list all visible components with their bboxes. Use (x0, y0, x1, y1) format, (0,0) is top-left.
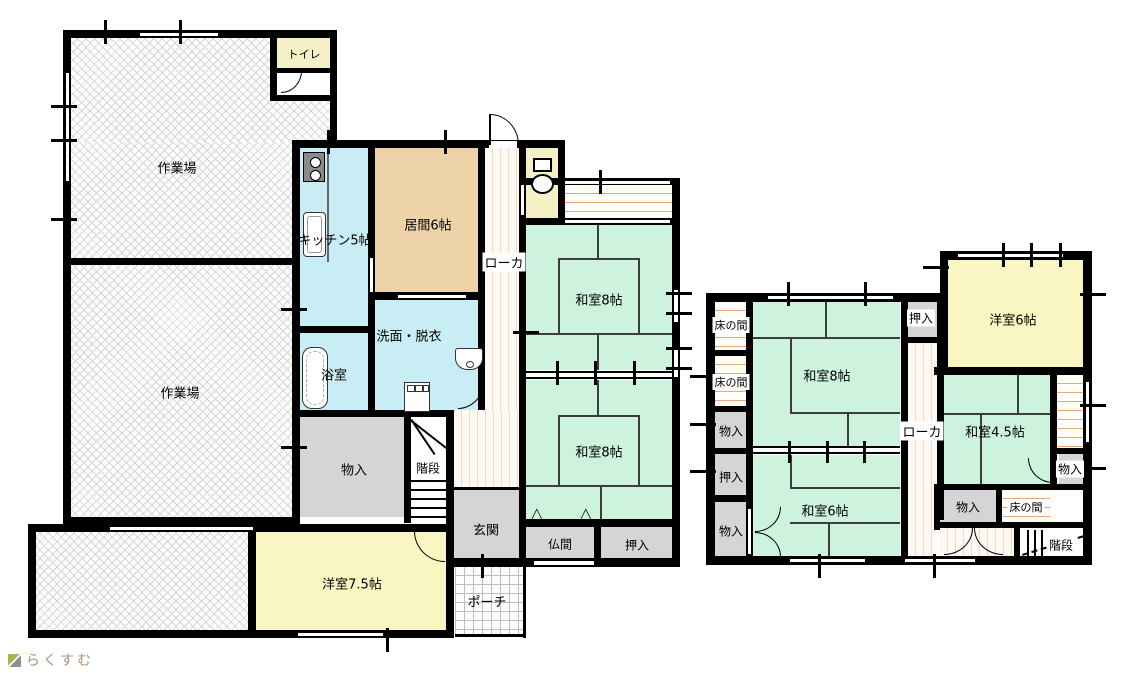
tatami-line (526, 485, 672, 487)
tick (923, 266, 949, 269)
porch-edge (523, 566, 526, 638)
label-kitchen: キッチン5帖 (298, 230, 371, 249)
corridor-right-bldg (908, 343, 937, 556)
label-tatami8-2: 和室8帖 (575, 442, 622, 461)
wall (28, 524, 36, 638)
tick (826, 441, 829, 463)
label-storage-left: 物入 (341, 460, 367, 479)
tick (481, 554, 484, 578)
tatami-line (1017, 375, 1019, 415)
tick (51, 218, 77, 221)
wall (594, 527, 601, 562)
label-oshiire-right: 押入 (719, 469, 743, 486)
tick (633, 361, 636, 385)
window (534, 561, 594, 565)
label-western6: 洋室6帖 (989, 310, 1036, 329)
label-tatami45: 和室4.5帖 (965, 422, 1025, 441)
tick (690, 423, 716, 426)
label-porch: ポーチ (467, 592, 506, 611)
label-tatami6-right: 和室6帖 (801, 501, 848, 520)
tatami-line (638, 415, 640, 487)
door-arc-main-entry (490, 114, 519, 145)
tick (1059, 243, 1062, 267)
stove-icon (303, 152, 325, 182)
floorplan-canvas: △ △ 作業場 作業場 トイレ キッチン5帖 居間6帖 ローカ 洗面・脱衣 浴室… (0, 0, 1135, 673)
wall (450, 487, 523, 490)
tatami-line (597, 225, 599, 260)
window (298, 633, 383, 636)
stair-step (411, 507, 446, 509)
corridor-left-lower (454, 410, 519, 487)
tick (818, 554, 821, 578)
tick (386, 628, 389, 652)
tick (327, 130, 330, 154)
rail (526, 371, 672, 373)
wall (712, 495, 748, 502)
tick (556, 361, 559, 385)
tatami-line (790, 412, 900, 414)
window (66, 73, 69, 181)
label-tokonoma2: 床の間 (713, 374, 750, 390)
wall (1053, 448, 1092, 454)
wall (292, 145, 300, 530)
tatami-line (825, 302, 827, 339)
tatami-line (828, 522, 830, 556)
wall (28, 630, 258, 638)
label-oshiire-top-right: 押入 (907, 310, 935, 327)
label-stairs-right: 階段 (1047, 537, 1075, 554)
label-storage2-right: 物入 (719, 523, 743, 540)
wall (706, 293, 715, 565)
label-workshop2: 作業場 (160, 383, 199, 402)
window (905, 559, 975, 562)
tatami-line (526, 333, 672, 335)
label-workshop1: 作業場 (157, 158, 196, 177)
wall (712, 350, 748, 356)
door-opening (748, 509, 751, 554)
label-corridor-left: ローカ (482, 253, 525, 272)
tatami-line (597, 333, 599, 370)
stair-step (411, 498, 446, 500)
wall (1014, 522, 1020, 562)
room-workshop-annex (36, 532, 248, 630)
window (1086, 382, 1089, 442)
tick (1080, 404, 1106, 407)
tick (788, 441, 791, 463)
wall (934, 484, 1056, 490)
tatami-line (600, 485, 602, 519)
tick (1002, 243, 1005, 267)
window (565, 220, 670, 223)
tick (666, 367, 692, 370)
corridor-left (485, 148, 519, 410)
door-opening (521, 185, 524, 215)
tick (933, 554, 936, 578)
tatami-line (942, 413, 1050, 415)
stair-step (411, 480, 446, 482)
tick (666, 292, 692, 295)
tick (690, 470, 716, 473)
tick (787, 282, 790, 306)
door-leaf (489, 114, 491, 145)
wall (292, 140, 485, 148)
label-storage-far-right: 物入 (1056, 461, 1084, 478)
tatami-line (847, 412, 849, 447)
tatami-line (558, 415, 560, 487)
tatami-line (790, 487, 900, 489)
tick (51, 105, 77, 108)
rail (526, 377, 672, 379)
tick (599, 170, 602, 194)
label-corridor-right: ローカ (900, 422, 943, 441)
tatami-line (597, 380, 599, 417)
window (565, 181, 670, 184)
washing-machine-icon (404, 382, 430, 412)
wall (901, 337, 941, 343)
sliding-door (370, 258, 373, 292)
logo-text: らくすむ (26, 650, 94, 670)
label-washroom: 洗面・脱衣 (376, 326, 441, 345)
label-tatami8-right: 和室8帖 (803, 366, 850, 385)
label-butsuma: 仏間 (548, 536, 572, 553)
wall (712, 448, 748, 454)
wall (270, 95, 337, 101)
window (674, 347, 678, 377)
tatami-line (790, 337, 792, 414)
stair-step (411, 489, 446, 491)
wall (292, 326, 375, 333)
label-toilet-top: トイレ (288, 46, 321, 62)
tick (281, 446, 307, 449)
label-tokonoma-bottom: 床の間 (1008, 499, 1045, 515)
window (398, 295, 466, 298)
label-living: 居間6帖 (404, 215, 451, 234)
label-entrance: 玄関 (473, 520, 499, 539)
tick (666, 312, 692, 315)
tick (104, 20, 107, 44)
tatami-line (638, 258, 640, 335)
label-stairs-left: 階段 (414, 460, 442, 477)
site-logo: らくすむ (8, 650, 94, 670)
tick (594, 361, 597, 385)
tick (864, 282, 867, 306)
logo-icon (8, 654, 21, 667)
porch-edge (455, 634, 526, 637)
wall (934, 367, 1092, 375)
tick (666, 347, 692, 350)
wall (330, 30, 337, 147)
wall (404, 417, 411, 523)
tick (51, 139, 77, 142)
wall (63, 258, 295, 265)
tick (1030, 243, 1033, 267)
window (958, 254, 1063, 257)
tick (1080, 293, 1106, 296)
tick (513, 331, 539, 334)
stair-step (411, 516, 446, 518)
engawa-top (565, 185, 672, 218)
wall (1053, 484, 1092, 490)
tatami-line (558, 258, 560, 335)
label-tokonoma1: 床の間 (713, 317, 750, 333)
toilet-bowl-icon (531, 174, 554, 194)
label-western75: 洋室7.5帖 (322, 574, 382, 593)
tatami-line (558, 258, 640, 260)
tick (179, 20, 182, 44)
stair-step (1041, 530, 1043, 556)
label-bath: 浴室 (321, 365, 347, 384)
tick (444, 130, 447, 154)
wall (706, 556, 1092, 565)
toilet-tank-icon (533, 158, 552, 172)
wall (996, 488, 1002, 526)
wall (478, 140, 485, 410)
label-tatami8-1: 和室8帖 (575, 290, 622, 309)
window (790, 559, 865, 562)
label-storage1-right: 物入 (719, 423, 743, 440)
wall (248, 530, 256, 638)
label-storage-bottom: 物入 (956, 499, 980, 516)
washbasin-icon (455, 348, 483, 370)
tick (863, 441, 866, 463)
wall (712, 406, 748, 412)
wall (519, 519, 680, 527)
tatami-line (790, 522, 900, 524)
folding-door-icon: △ (531, 506, 543, 521)
engawa-right (1057, 375, 1083, 448)
label-oshiire-left-bldg: 押入 (625, 537, 649, 554)
window (110, 527, 253, 530)
tick (281, 308, 307, 311)
folding-door-icon: △ (580, 506, 592, 521)
tatami-line (558, 415, 640, 417)
